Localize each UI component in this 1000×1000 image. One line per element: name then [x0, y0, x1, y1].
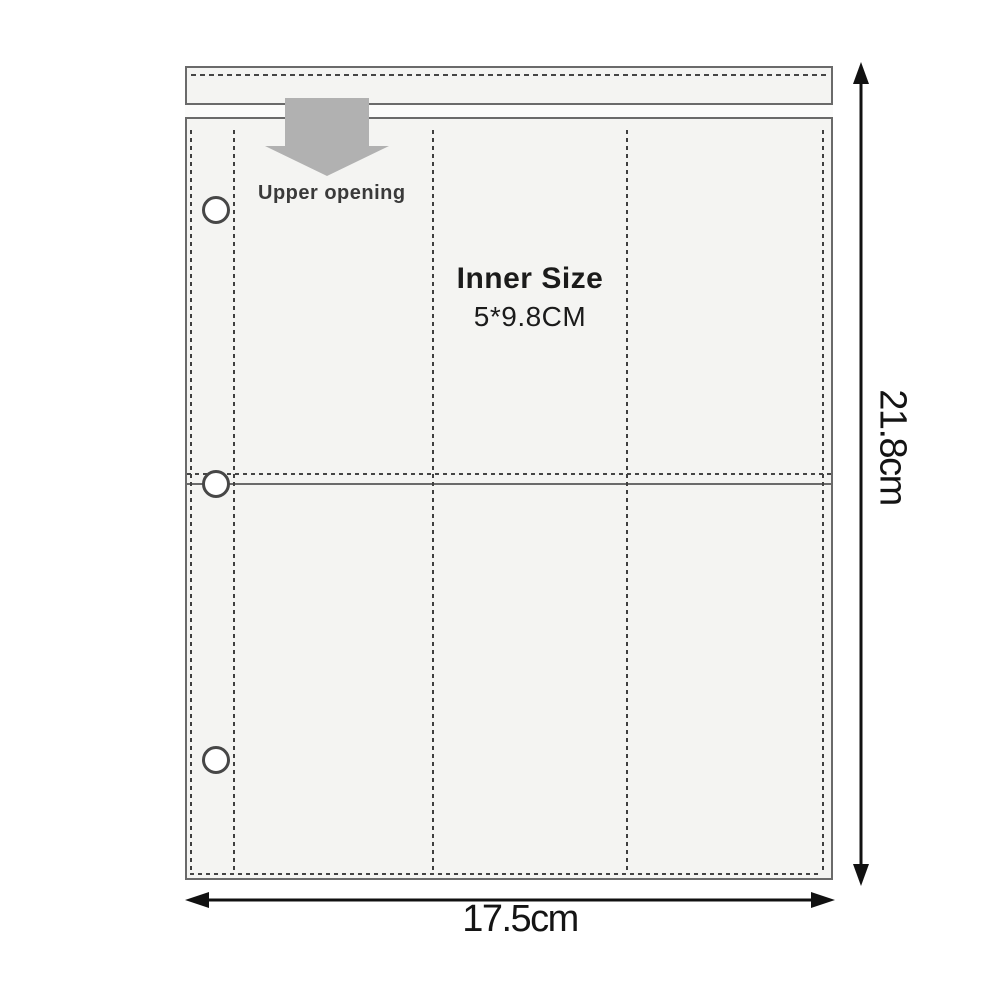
bottom-stitch-line: [190, 873, 821, 875]
binder-hole: [202, 470, 230, 498]
column-divider-stitch-line: [432, 130, 434, 873]
product-diagram: Upper opening Inner Size 5*9.8CM 21.8cm …: [0, 0, 1000, 1000]
down-arrow-icon: [265, 98, 389, 176]
inner-size-annotation: Inner Size 5*9.8CM: [434, 262, 626, 333]
width-dimension-label: 17.5cm: [462, 898, 578, 941]
upper-opening-label: Upper opening: [258, 182, 406, 205]
inner-size-value: 5*9.8CM: [434, 301, 626, 333]
binding-margin-stitch-line: [233, 130, 235, 873]
binder-hole: [202, 746, 230, 774]
binder-hole: [202, 196, 230, 224]
column-divider-stitch-line: [626, 130, 628, 873]
height-dimension-label: 21.8cm: [871, 389, 914, 505]
left-edge-stitch-line: [190, 130, 192, 873]
pocket-page: Upper opening Inner Size 5*9.8CM: [185, 66, 833, 880]
top-stitch-line: [191, 74, 827, 76]
middle-seam-line: [185, 483, 833, 485]
right-edge-stitch-line: [822, 130, 824, 873]
inner-size-title: Inner Size: [434, 262, 626, 296]
middle-stitch-line: [187, 473, 831, 475]
